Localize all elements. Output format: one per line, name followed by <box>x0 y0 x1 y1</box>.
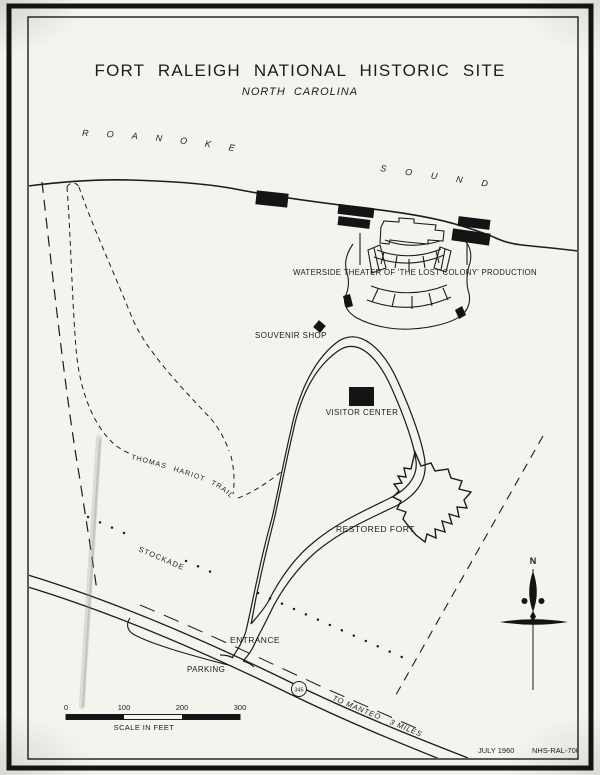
compass-north-label: N <box>530 556 537 566</box>
footer-sheet-number: NHS-RAL-7003 <box>532 746 584 755</box>
scale-bar: 0 100 200 300 SCALE IN FEET <box>64 703 246 732</box>
trail-east-branch <box>79 187 229 451</box>
theater-stage-outline <box>380 218 444 244</box>
theater-label: WATERSIDE THEATER OF 'THE LOST COLONY' P… <box>293 268 537 277</box>
route-shield-number: 345 <box>294 688 303 694</box>
outer-frame <box>9 6 591 768</box>
loop-road <box>220 337 425 667</box>
road-destination: TO MANTEO 3 MILES <box>331 694 423 739</box>
scale-tick-100: 100 <box>118 703 131 712</box>
theater-outline-blob <box>345 241 471 329</box>
highway <box>28 575 468 764</box>
map-title: FORT RALEIGH NATIONAL HISTORIC SITE <box>94 61 505 80</box>
scale-bar-seg-1 <box>66 715 124 720</box>
road-destination-label: TO MANTEO <box>331 694 382 722</box>
footer-date: JULY 1960 <box>478 746 514 755</box>
trail-bend <box>231 456 234 494</box>
shoreline <box>28 180 578 251</box>
theater-label-leaders <box>360 233 467 265</box>
theater-building-left-1 <box>338 204 375 218</box>
route-shield: 345 <box>292 682 307 697</box>
souvenir-shop-label: SOUVENIR SHOP <box>255 331 327 340</box>
highway-lower-edge <box>28 587 452 764</box>
dock-building <box>255 190 288 207</box>
trail-label-text: THOMAS HARIOT TRAIL <box>130 454 234 500</box>
trail-continuation <box>238 472 281 498</box>
stockade-dots-2 <box>186 561 220 576</box>
inner-frame <box>28 17 578 759</box>
trail-west-branch <box>67 187 131 454</box>
scan-smudge <box>82 438 100 706</box>
compass-spear <box>529 571 537 612</box>
east-boundary <box>393 436 543 700</box>
visitor-center-building <box>349 387 374 406</box>
scale-bar-seg-3 <box>182 715 240 720</box>
theater-lower-radials <box>372 288 448 309</box>
compass-crossbar <box>500 619 568 625</box>
compass-curl-right <box>539 598 545 604</box>
water-label-roanoke: ROANOKE <box>82 128 253 156</box>
theater-lower-arc-1 <box>371 285 447 293</box>
theater-building-right-1 <box>458 216 491 230</box>
restored-fort-label: RESTORED FORT <box>336 524 415 534</box>
stockade-label: STOCKADE <box>137 545 186 572</box>
scale-tick-0: 0 <box>64 703 68 712</box>
fort-raleigh-map: FORT RALEIGH NATIONAL HISTORIC SITE NORT… <box>0 0 600 775</box>
water-label-sound-text: SOUND <box>380 163 508 191</box>
scale-tick-200: 200 <box>176 703 189 712</box>
scale-tick-300: 300 <box>234 703 247 712</box>
theater-tick-left <box>343 294 353 308</box>
theater-building-right-2 <box>451 228 490 245</box>
theater-tick-right <box>455 306 466 319</box>
scale-bar-caption: SCALE IN FEET <box>114 723 175 732</box>
theater-building-left-2 <box>338 216 371 229</box>
trail-top <box>67 183 79 187</box>
water-label-sound: SOUND <box>380 163 508 191</box>
parking-label: PARKING <box>187 665 225 674</box>
scan-smudge-streak-2 <box>83 440 100 706</box>
entrance-label: ENTRANCE <box>230 635 280 645</box>
theater-upper-arc-1 <box>377 249 441 256</box>
compass-curl-left <box>522 598 528 604</box>
water-label-roanoke-text: ROANOKE <box>82 128 253 156</box>
loop-road-inner-edge <box>251 346 416 624</box>
map-subtitle: NORTH CAROLINA <box>242 86 358 98</box>
map-page: FORT RALEIGH NATIONAL HISTORIC SITE NORT… <box>0 0 600 775</box>
visitor-center-label: VISITOR CENTER <box>326 408 399 417</box>
trail-label: THOMAS HARIOT TRAIL <box>130 454 234 500</box>
compass-rose: N <box>500 556 568 690</box>
stockade-dots-3 <box>258 593 413 662</box>
west-boundary <box>42 182 97 591</box>
theater-lower-arc-2 <box>367 297 451 307</box>
